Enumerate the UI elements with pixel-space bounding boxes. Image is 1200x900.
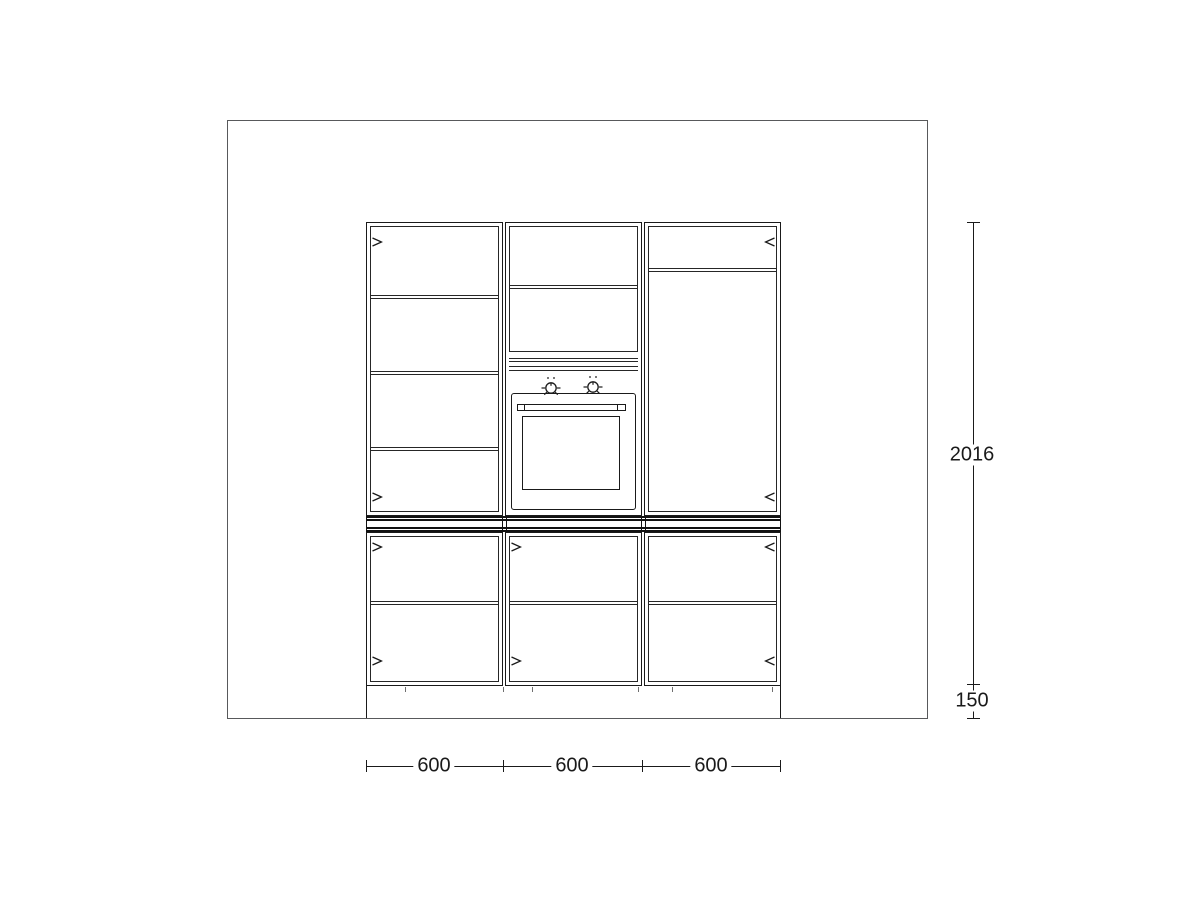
- dimension-tick: [366, 760, 367, 772]
- kitchen-elevation-canvas: 600 600 600 2016 150: [0, 0, 1200, 900]
- height-dimension-line: [973, 222, 974, 718]
- trim-strip-line: [509, 358, 638, 362]
- cabinet-side-seam: [641, 516, 646, 532]
- shelf-line: [370, 447, 499, 451]
- dimension-label-width-2: 600: [551, 756, 592, 777]
- tall-cabinet-left-door[interactable]: [370, 226, 499, 512]
- oven-housing-cabinet[interactable]: [505, 222, 642, 516]
- door-gap-line: [509, 285, 638, 289]
- door-swing-right-icon: [371, 542, 383, 552]
- trim-strip-line: [509, 366, 638, 371]
- door-swing-left-icon: [764, 492, 776, 502]
- door-swing-left-icon: [764, 542, 776, 552]
- dimension-tick: [967, 718, 980, 719]
- drawer-front-line: [648, 268, 777, 272]
- plinth[interactable]: [366, 686, 781, 718]
- base-cabinet-right-door[interactable]: [648, 536, 777, 682]
- cabinet-junction-band: [366, 516, 781, 532]
- dimension-tick: [967, 222, 980, 223]
- base-cabinet-right[interactable]: [644, 532, 781, 686]
- dimension-label-cabinet-height: 2016: [946, 445, 999, 466]
- dimension-tick: [503, 760, 504, 772]
- junction-rail-line: [367, 516, 780, 521]
- shelf-line: [370, 371, 499, 375]
- dimension-tick: [642, 760, 643, 772]
- tall-cabinet-right[interactable]: [644, 222, 781, 516]
- shelf-line: [370, 295, 499, 299]
- door-swing-right-icon: [371, 237, 383, 247]
- oven-housing-upper-door[interactable]: [509, 226, 638, 352]
- oven-door-window: [522, 416, 620, 490]
- door-gap-line: [370, 601, 499, 605]
- door-gap-line: [648, 601, 777, 605]
- base-cabinet-middle[interactable]: [505, 532, 642, 686]
- cabinet-side-seam: [502, 516, 507, 532]
- door-swing-right-icon: [510, 542, 522, 552]
- door-swing-left-icon: [764, 237, 776, 247]
- tall-cabinet-left[interactable]: [366, 222, 503, 516]
- oven-handle: [517, 404, 626, 411]
- oven[interactable]: [511, 393, 636, 510]
- cabinet-foot-tick: [503, 687, 504, 692]
- door-gap-line: [509, 601, 638, 605]
- dimension-label-width-1: 600: [413, 756, 454, 777]
- door-swing-left-icon: [764, 656, 776, 666]
- door-swing-right-icon: [510, 656, 522, 666]
- oven-handle-bracket: [524, 405, 525, 410]
- dimension-tick: [967, 684, 980, 685]
- dimension-label-plinth-height: 150: [951, 691, 992, 712]
- cabinet-foot-tick: [672, 687, 673, 692]
- cabinet-foot-tick: [638, 687, 639, 692]
- base-cabinet-middle-door[interactable]: [509, 536, 638, 682]
- dimension-label-width-3: 600: [690, 756, 731, 777]
- dimension-tick: [780, 760, 781, 772]
- cabinet-foot-tick: [405, 687, 406, 692]
- oven-handle-bracket: [617, 405, 618, 410]
- cabinet-foot-tick: [772, 687, 773, 692]
- cabinet-foot-tick: [532, 687, 533, 692]
- door-swing-right-icon: [371, 492, 383, 502]
- base-cabinet-left[interactable]: [366, 532, 503, 686]
- door-swing-right-icon: [371, 656, 383, 666]
- base-cabinet-left-door[interactable]: [370, 536, 499, 682]
